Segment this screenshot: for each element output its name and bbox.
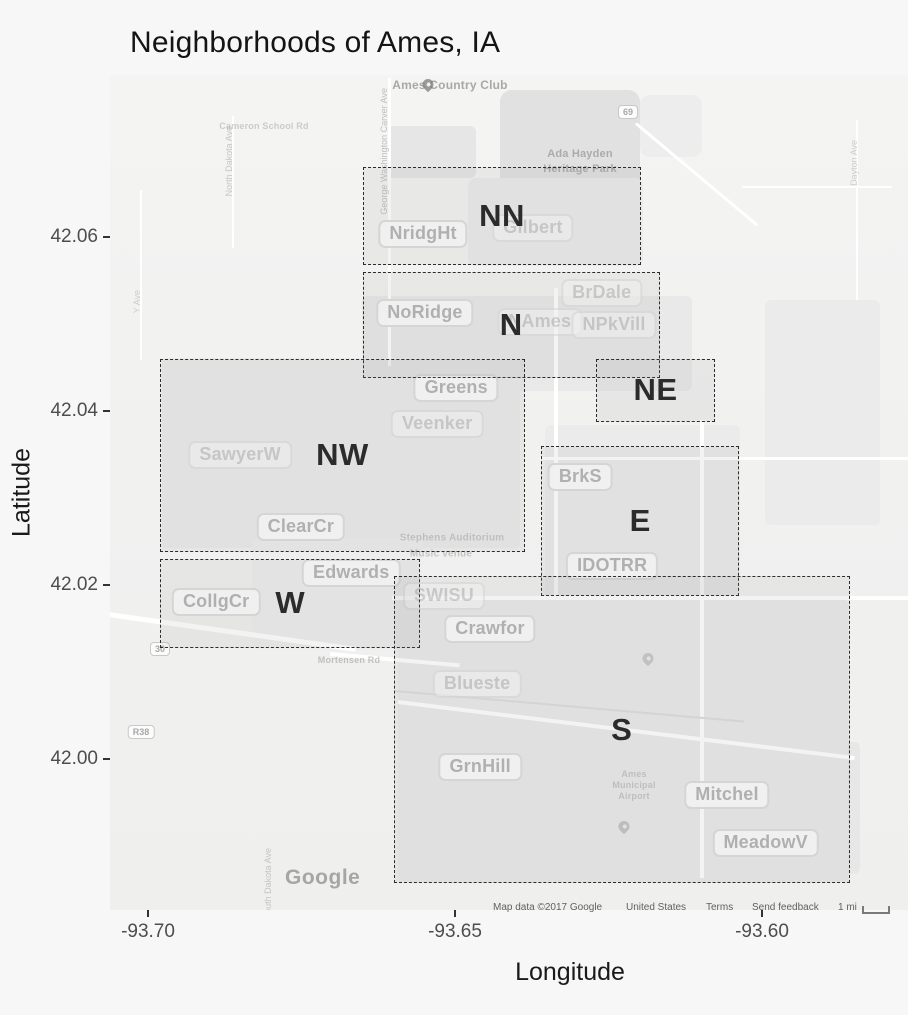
poi-label: Ames Country Club — [392, 78, 507, 92]
poi-label: Stephens Auditorium — [400, 533, 505, 544]
attribution-item: 1 mi — [838, 902, 857, 913]
poi-label: Municipal — [612, 780, 655, 790]
road-line — [700, 420, 704, 878]
poi-label: Ada Hayden — [547, 148, 613, 160]
street-label: South Dakota Ave — [263, 848, 273, 910]
y-tick-label: 42.00 — [28, 748, 98, 770]
map-area-patch — [388, 126, 476, 178]
x-tick-mark — [761, 910, 763, 917]
map-panel: George Washington Carver AveNorth Dakota… — [110, 75, 908, 910]
street-label: Dayton Ave — [849, 140, 859, 186]
figure-title: Neighborhoods of Ames, IA — [130, 26, 500, 60]
x-tick-label: -93.70 — [121, 921, 175, 943]
street-label: George Washington Carver Ave — [379, 88, 389, 215]
road-line — [140, 190, 142, 360]
y-tick-mark — [103, 584, 110, 586]
street-label: Y Ave — [132, 290, 142, 313]
x-tick-mark — [454, 910, 456, 917]
x-tick-mark — [147, 910, 149, 917]
attribution-item[interactable]: Terms — [706, 902, 733, 913]
google-watermark[interactable]: Google — [285, 866, 360, 890]
map-area-patch — [398, 600, 848, 882]
x-axis-title: Longitude — [420, 958, 720, 987]
route-shield: 69 — [618, 105, 638, 119]
map-area-patch — [640, 95, 702, 157]
map-area-patch — [468, 178, 643, 266]
attribution-item: United States — [626, 902, 686, 913]
poi-label: Heritage Park — [543, 163, 617, 175]
poi-label: Airport — [618, 791, 649, 801]
y-tick-label: 42.02 — [28, 574, 98, 596]
x-tick-label: -93.65 — [428, 921, 482, 943]
map-area-patch — [765, 300, 880, 525]
street-label: North Dakota Ave — [224, 126, 234, 196]
figure: George Washington Carver AveNorth Dakota… — [0, 0, 908, 1015]
road-line — [540, 457, 908, 460]
poi-label: Ames — [621, 769, 646, 779]
y-tick-mark — [103, 236, 110, 238]
poi-label: Mortensen Rd — [318, 655, 380, 665]
road-line — [554, 288, 558, 598]
y-tick-mark — [103, 758, 110, 760]
map-area-patch — [252, 538, 422, 650]
poi-label: Music venue — [410, 549, 472, 560]
map-area-patch — [545, 425, 740, 600]
scale-bar — [862, 906, 890, 914]
poi-label: Cameron School Rd — [219, 121, 308, 131]
y-tick-mark — [103, 410, 110, 412]
y-axis-title: Latitude — [8, 393, 37, 593]
route-shield: R38 — [128, 725, 155, 739]
attribution-item: Map data ©2017 Google — [493, 902, 602, 913]
y-tick-label: 42.04 — [28, 400, 98, 422]
route-shield: 30 — [150, 642, 170, 656]
road-line — [392, 596, 908, 600]
y-tick-label: 42.06 — [28, 226, 98, 248]
map-area-patch — [162, 358, 520, 548]
x-tick-label: -93.60 — [735, 921, 789, 943]
road-line — [742, 186, 892, 188]
